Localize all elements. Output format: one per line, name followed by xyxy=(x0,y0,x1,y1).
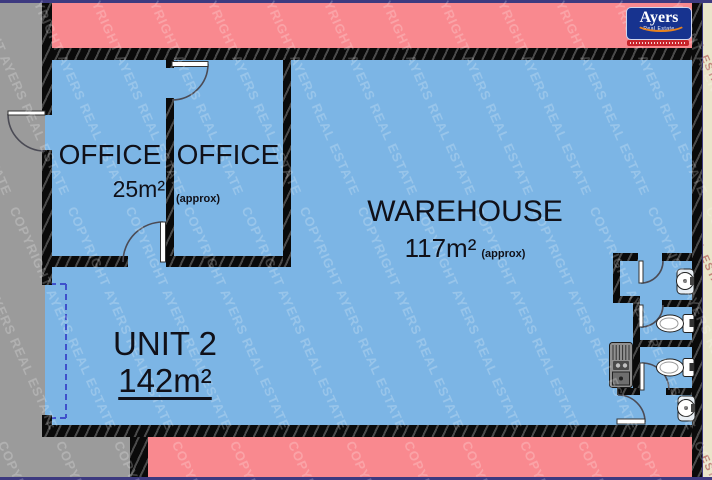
doors-and-fixtures-layer xyxy=(0,0,712,480)
toilet-icon xyxy=(657,315,695,333)
sink-trough-icon xyxy=(610,343,633,388)
basin-icon xyxy=(677,269,695,294)
basin-icon xyxy=(678,396,696,421)
floorplan: COPYRIGHT AYERS REAL ESTATE COPYRIGHT AY… xyxy=(0,0,712,480)
warehouse-area: 117m² (approx) xyxy=(360,235,570,262)
unit-area: 142m² xyxy=(85,364,245,399)
ayers-logo: Ayers Real Estate xyxy=(626,7,692,47)
warehouse-area-note: (approx) xyxy=(481,249,525,261)
ayers-logo-box: Ayers Real Estate xyxy=(626,7,692,40)
office-right-label: OFFICE xyxy=(174,140,282,169)
warehouse-area-value: 117m² xyxy=(405,235,477,262)
toilet-icon xyxy=(657,359,695,377)
warehouse-label: WAREHOUSE xyxy=(355,196,575,228)
unit-label: UNIT 2 xyxy=(95,327,235,362)
office-left-label: OFFICE xyxy=(52,140,168,169)
office-right-area-note: (approx) xyxy=(176,194,236,206)
dashed-opening-line xyxy=(52,284,66,418)
logo-red-banner xyxy=(627,40,689,46)
office-left-area: 25m² xyxy=(52,177,165,201)
logo-swoosh-icon xyxy=(635,14,687,32)
